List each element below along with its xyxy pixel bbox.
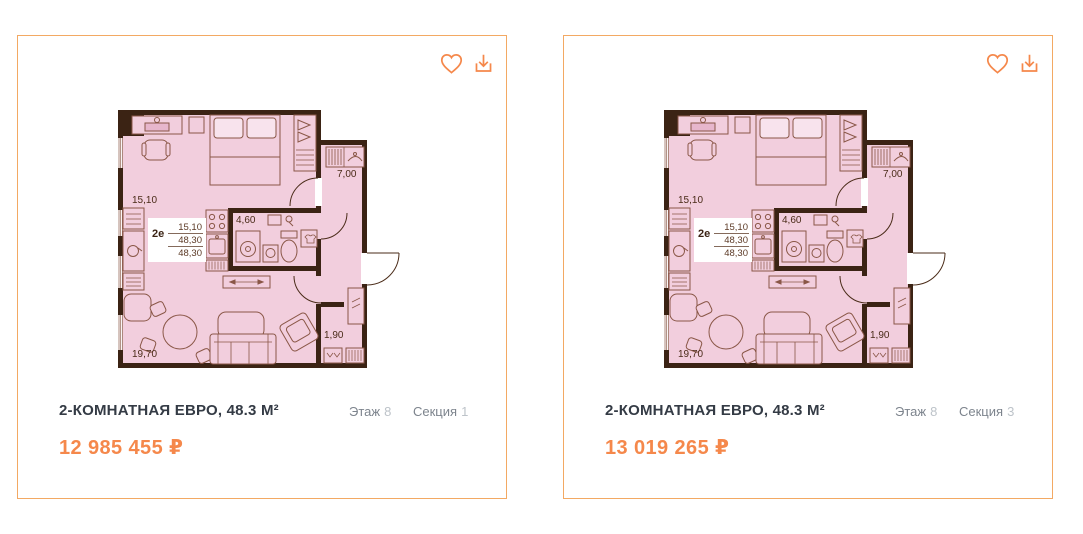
kitchen-hob-icon <box>752 210 774 232</box>
wardrobe-icon <box>840 115 862 171</box>
stove-icon <box>669 273 690 290</box>
floor-value: 8 <box>930 404 937 419</box>
section-label: Секция <box>959 404 1003 419</box>
dishwasher-icon <box>206 260 228 271</box>
download-icon <box>1016 51 1043 78</box>
floor-plan: 2е 15,10 48,30 48,30 15,10 7,00 4,60 19,… <box>664 110 954 368</box>
laundry-basket-icon <box>301 230 317 247</box>
floor-label: Этаж <box>895 404 926 419</box>
tv-stand-icon <box>223 276 270 288</box>
section-info: Секция3 <box>959 404 1014 419</box>
desk-icon <box>132 116 182 134</box>
washing-machine-icon <box>236 231 260 262</box>
floor-info: Этаж8 <box>349 404 391 419</box>
section-value: 1 <box>461 404 468 419</box>
bathroom-sink-icon <box>263 245 278 262</box>
stove-icon <box>123 273 144 290</box>
sofa-icon <box>756 334 822 364</box>
storage-cabinet-icon <box>348 288 364 324</box>
storage-cabinet-icon <box>894 288 910 324</box>
favorite-button[interactable] <box>438 51 465 78</box>
dim-wardrobe: 1,90 <box>870 330 890 341</box>
dim-bedroom: 15,10 <box>132 195 157 206</box>
floor-label: Этаж <box>349 404 380 419</box>
stat-total-area: 48,30 <box>178 235 202 246</box>
floor-value: 8 <box>384 404 391 419</box>
section-info: Секция1 <box>413 404 468 419</box>
listing-cards: 2е 15,10 48,30 48,30 15,10 7,00 4,60 19,… <box>17 35 1053 499</box>
laundry-basket-icon <box>847 230 863 247</box>
floor-plan-slot: 2е 15,10 48,30 48,30 15,10 7,00 4,60 19,… <box>118 110 408 368</box>
apartment-info-box: 2е 15,10 48,30 48,30 <box>148 218 206 262</box>
listing-card-1[interactable]: 2е 15,10 48,30 48,30 15,10 7,00 4,60 19,… <box>17 35 507 499</box>
dim-bath: 4,60 <box>782 215 802 226</box>
shelf-icon <box>735 117 750 133</box>
price: 12 985 455 ₽ <box>59 435 183 460</box>
desk-icon <box>678 116 728 134</box>
wardrobe-icon <box>294 115 316 171</box>
kitchen-hob-icon <box>206 210 228 232</box>
section-value: 3 <box>1007 404 1014 419</box>
washing-machine-icon <box>782 231 806 262</box>
dim-wardrobe: 1,90 <box>324 330 344 341</box>
dishwasher-icon <box>752 260 774 271</box>
dim-hall: 7,00 <box>883 169 903 180</box>
dim-bath: 4,60 <box>236 215 256 226</box>
floor-plan: 2е 15,10 48,30 48,30 15,10 7,00 4,60 19,… <box>118 110 408 368</box>
bathroom-sink-icon <box>809 245 824 262</box>
listing-card-2[interactable]: 2е 15,10 48,30 48,30 15,10 7,00 4,60 19,… <box>563 35 1053 499</box>
favorite-button[interactable] <box>984 51 1011 78</box>
dim-living: 19,70 <box>678 349 703 360</box>
stat-total-area: 48,30 <box>724 235 748 246</box>
floor-info: Этаж8 <box>895 404 937 419</box>
bed-icon <box>756 115 826 185</box>
dim-bedroom: 15,10 <box>678 195 703 206</box>
stat-total-area-2: 48,30 <box>178 248 202 259</box>
sofa-icon <box>210 334 276 364</box>
heart-outline-icon <box>438 51 465 78</box>
stat-living-area: 15,10 <box>724 222 748 233</box>
card-actions <box>438 51 497 78</box>
fridge-icon <box>123 208 144 229</box>
dim-hall: 7,00 <box>337 169 357 180</box>
download-icon <box>470 51 497 78</box>
apartment-title: 2-КОМНАТНАЯ ЕВРО, 48.3 М² <box>605 402 825 419</box>
stat-total-area-2: 48,30 <box>724 248 748 259</box>
apartment-info-box: 2е 15,10 48,30 48,30 <box>694 218 752 262</box>
card-actions <box>984 51 1043 78</box>
shelf-icon <box>189 117 204 133</box>
kitchen-counter-icon <box>123 231 144 271</box>
apartment-title: 2-КОМНАТНАЯ ЕВРО, 48.3 М² <box>59 402 279 419</box>
dim-living: 19,70 <box>132 349 157 360</box>
section-label: Секция <box>413 404 457 419</box>
floor-plan-slot: 2е 15,10 48,30 48,30 15,10 7,00 4,60 19,… <box>664 110 954 368</box>
kitchen-sink-icon <box>206 234 228 258</box>
desk-chair-icon <box>688 140 716 160</box>
tv-stand-icon <box>769 276 816 288</box>
hall-closet-icon <box>326 147 364 167</box>
download-button[interactable] <box>470 51 497 78</box>
apartment-type-label: 2е <box>152 228 164 240</box>
heart-outline-icon <box>984 51 1011 78</box>
apartment-type-label: 2е <box>698 228 710 240</box>
download-button[interactable] <box>1016 51 1043 78</box>
hall-closet-icon <box>872 147 910 167</box>
kitchen-counter-icon <box>669 231 690 271</box>
kitchen-sink-icon <box>752 234 774 258</box>
desk-chair-icon <box>142 140 170 160</box>
bed-icon <box>210 115 280 185</box>
stat-living-area: 15,10 <box>178 222 202 233</box>
price: 13 019 265 ₽ <box>605 435 729 460</box>
fridge-icon <box>669 208 690 229</box>
